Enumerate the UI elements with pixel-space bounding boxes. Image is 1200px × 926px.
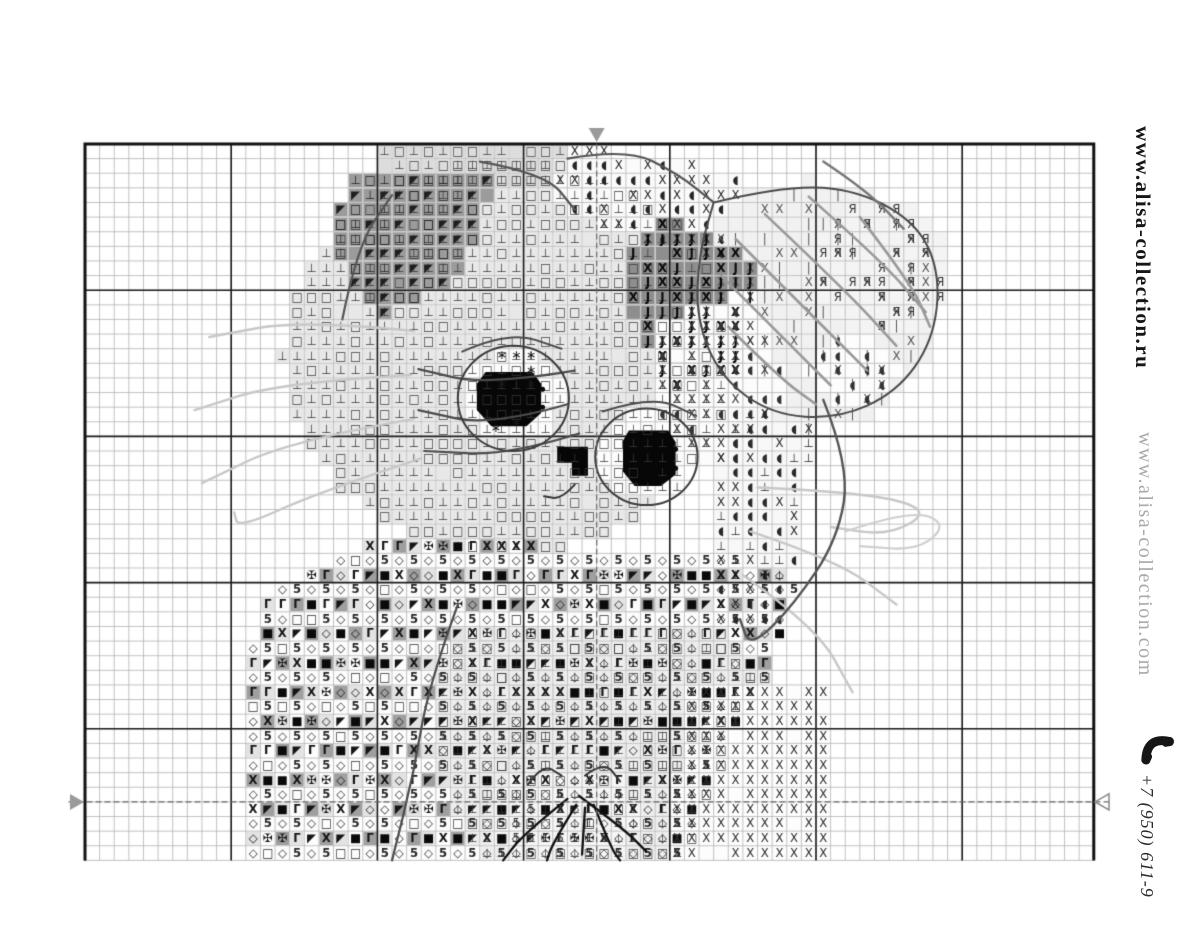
phone-number: +7 (950) 611-9	[1136, 774, 1157, 898]
website-com: www.alisa-collection.com	[1133, 432, 1156, 677]
phone-handset-icon	[1133, 726, 1175, 766]
pattern-page: Басик и Милена. В гости к Вам13x13 см Ba…	[0, 0, 1200, 926]
cross-stitch-chart	[0, 0, 1200, 926]
website-ru: www.alisa-collection.ru	[1130, 126, 1155, 369]
